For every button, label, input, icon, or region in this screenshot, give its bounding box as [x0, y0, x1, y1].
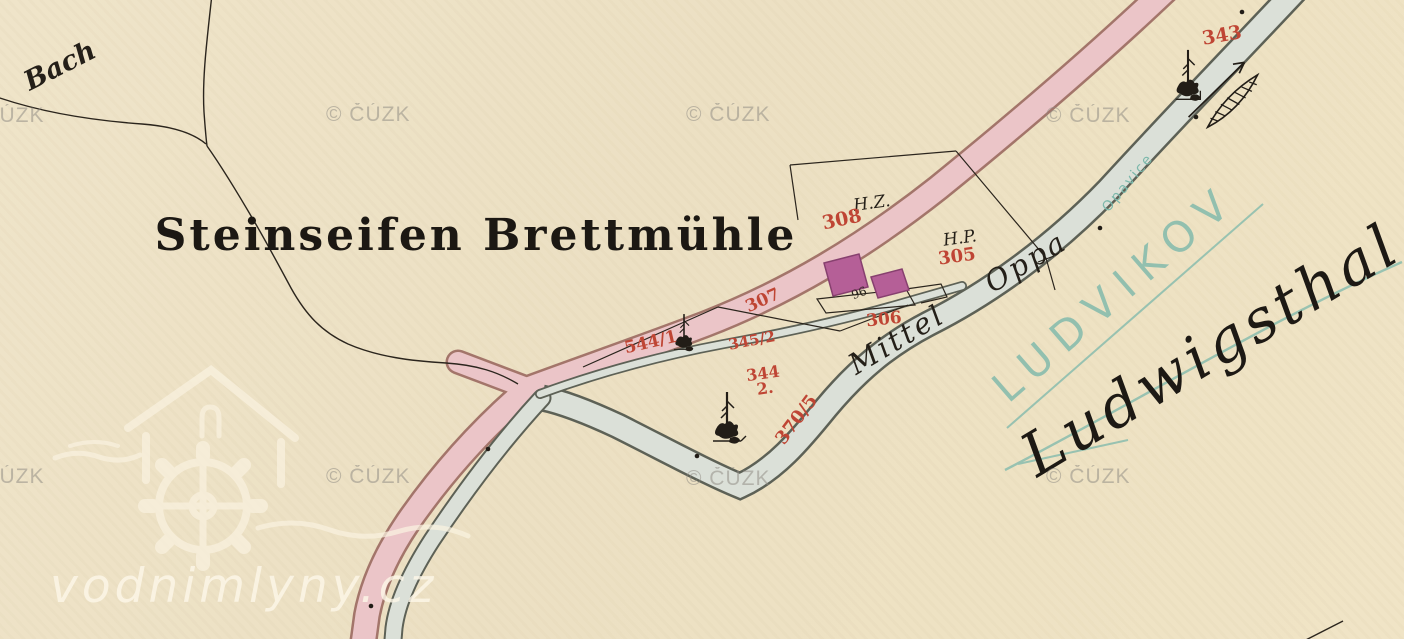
cuzk-watermark: © ČÚZK [1046, 466, 1130, 487]
parcel-number-344-2: 344 2. [745, 364, 782, 399]
tree-icon [1176, 50, 1201, 101]
map-canvas[interactable]: Steinseifen Brettmühle Bach H.Z. 308 H.P… [0, 0, 1404, 639]
cuzk-watermark: © ČÚZK [0, 466, 44, 487]
cuzk-watermark: © ČÚZK [326, 104, 410, 125]
parcel-number-305: 305 [937, 245, 977, 268]
building [871, 269, 909, 298]
cuzk-watermark: © ČÚZK [0, 105, 44, 126]
site-watermark-vodnimlyny: vodnimlyny.cz [50, 563, 437, 610]
cuzk-watermark: © ČÚZK [326, 466, 410, 487]
tree-icon [713, 392, 746, 444]
settlement-label-steinseifen-brettmuehle: Steinseifen Brettmühle [155, 214, 798, 258]
cuzk-watermark: © ČÚZK [1046, 105, 1130, 126]
cuzk-watermark: © ČÚZK [686, 468, 770, 489]
cuzk-watermark: © ČÚZK [686, 104, 770, 125]
